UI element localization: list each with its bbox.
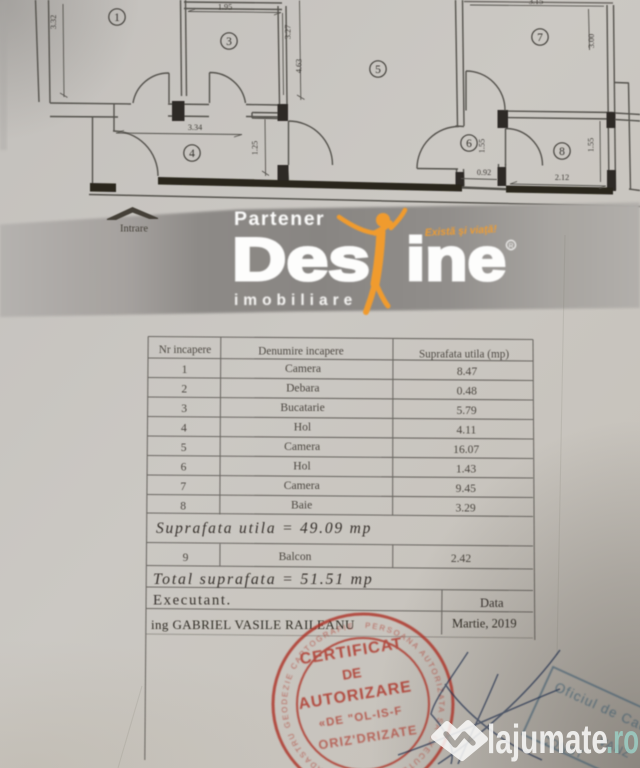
svg-text:2: 2 (181, 383, 187, 396)
svg-text:Denumire incapere: Denumire incapere (258, 346, 343, 358)
svg-text:R: R (508, 243, 513, 250)
svg-text:ing GABRIEL VASILE RAILEANU: ing GABRIEL VASILE RAILEANU (151, 617, 355, 632)
svg-text:16.07: 16.07 (453, 443, 479, 456)
svg-text:imobiliare: imobiliare (234, 292, 357, 309)
svg-text:Total suprafata = 51.51 mp: Total suprafata = 51.51 mp (153, 571, 374, 588)
svg-text:3.00: 3.00 (587, 34, 596, 48)
svg-text:Martie, 2019: Martie, 2019 (452, 617, 517, 631)
svg-text:5: 5 (181, 441, 187, 454)
svg-text:1.25: 1.25 (251, 141, 260, 155)
svg-text:8: 8 (559, 146, 565, 158)
svg-text:4.11: 4.11 (456, 424, 476, 437)
svg-text:lajumate: lajumate (487, 716, 608, 762)
svg-text:DE: DE (341, 665, 362, 683)
svg-text:Data: Data (480, 596, 504, 610)
svg-text:8.47: 8.47 (457, 365, 477, 378)
svg-text:1: 1 (182, 363, 188, 376)
svg-text:3.15: 3.15 (529, 0, 543, 6)
svg-text:2.12: 2.12 (555, 173, 569, 182)
svg-text:1: 1 (114, 12, 120, 24)
svg-text:9.45: 9.45 (456, 482, 476, 495)
svg-text:Nr incapere: Nr incapere (159, 344, 212, 356)
svg-text:3.34: 3.34 (188, 123, 202, 132)
svg-text:Camera: Camera (285, 362, 321, 375)
svg-text:9: 9 (183, 551, 189, 564)
svg-text:2.42: 2.42 (451, 552, 471, 565)
svg-text:Balcon: Balcon (279, 550, 312, 563)
svg-text:6: 6 (181, 461, 187, 474)
svg-text:Camera: Camera (284, 479, 320, 492)
svg-text:.ro: .ro (606, 716, 639, 762)
svg-text:Baie: Baie (291, 499, 312, 512)
svg-text:1.95: 1.95 (218, 3, 232, 12)
svg-text:5.79: 5.79 (456, 404, 476, 417)
svg-text:1.55: 1.55 (587, 138, 596, 152)
svg-text:Camera: Camera (284, 440, 320, 453)
svg-text:5: 5 (375, 64, 381, 76)
svg-text:7: 7 (180, 480, 186, 493)
svg-text:4: 4 (189, 148, 195, 160)
svg-text:Intrare: Intrare (120, 224, 148, 235)
svg-text:0.92: 0.92 (477, 168, 491, 177)
svg-text:Suprafata utila = 49.09 mp: Suprafata utila = 49.09 mp (156, 520, 372, 537)
svg-text:8: 8 (180, 500, 186, 513)
svg-text:3.32: 3.32 (49, 15, 58, 29)
svg-text:Executant.: Executant. (153, 593, 232, 609)
svg-text:3.27: 3.27 (284, 25, 293, 39)
svg-text:7: 7 (537, 32, 543, 44)
svg-text:1.55: 1.55 (478, 139, 487, 153)
svg-text:6: 6 (466, 138, 472, 150)
svg-text:0.48: 0.48 (457, 385, 477, 398)
svg-text:Des: Des (232, 226, 370, 293)
svg-text:3: 3 (226, 36, 232, 48)
svg-text:Suprafata utila (mp): Suprafata utila (mp) (419, 349, 509, 361)
svg-text:4.63: 4.63 (295, 59, 304, 73)
svg-text:1.43: 1.43 (456, 463, 476, 476)
svg-text:3.29: 3.29 (455, 502, 475, 515)
svg-text:Bucatarie: Bucatarie (280, 401, 324, 414)
svg-text:Debara: Debara (286, 382, 319, 395)
svg-text:Hol: Hol (294, 421, 311, 434)
svg-text:3: 3 (181, 402, 187, 415)
svg-text:4: 4 (181, 422, 187, 435)
svg-text:Hol: Hol (293, 460, 310, 473)
